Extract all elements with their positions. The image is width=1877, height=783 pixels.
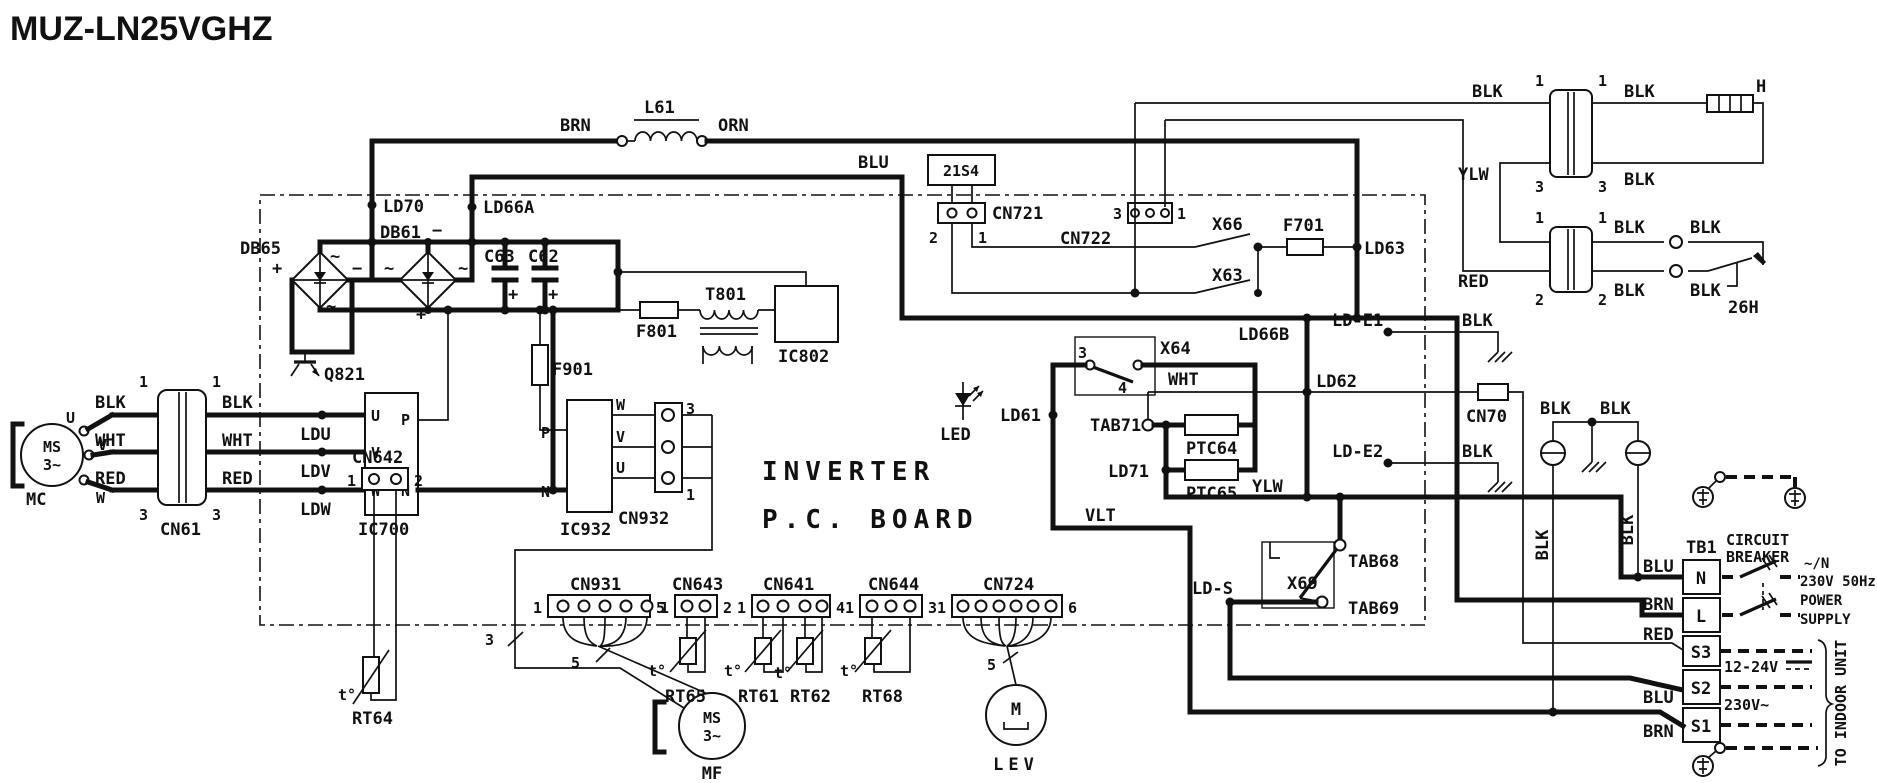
wire-blk-l: BLK [95, 393, 126, 413]
wire-wht-r: WHT [222, 431, 253, 451]
db61-minus: − [432, 221, 442, 241]
label-q821: Q821 [324, 365, 365, 385]
mf-ms: MS [703, 709, 721, 727]
label-lds: LD-S [1192, 579, 1233, 599]
label-db65: DB65 [240, 239, 281, 259]
ic932-p: P [541, 424, 550, 442]
db65-plus: + [272, 259, 282, 279]
tb-blu-n: BLU [1643, 557, 1674, 577]
db65-minus: − [352, 259, 362, 279]
ptc65-box [1185, 460, 1238, 480]
sensor-row: 1 2 CN642 t° RT64 1 5 CN931 5 MS 3~ MF 1… [338, 448, 1077, 783]
label-mains: 230V~ [1724, 696, 1769, 714]
c2-blk-4: BLK [1690, 281, 1721, 301]
label-c62: C62 [528, 247, 559, 267]
tb1-s3-label: S3 [1691, 643, 1711, 663]
cn641-p4: 4 [836, 599, 845, 617]
lde1-blk: BLK [1462, 311, 1493, 331]
label-ldw: LDW [300, 500, 331, 520]
label-tab68: TAB68 [1348, 552, 1399, 572]
label-rt62: RT62 [790, 687, 831, 707]
ic932-v: V [616, 428, 625, 446]
mc-3ph: 3~ [43, 456, 61, 474]
label-ptc65: PTC65 [1186, 484, 1237, 504]
label-ld61: LD61 [1000, 406, 1041, 426]
f901-fuse [532, 345, 548, 385]
cn932-p1: 1 [686, 486, 695, 504]
label-heater: H [1756, 77, 1766, 97]
earth-blk-v2: BLK [1618, 514, 1638, 545]
label-mf: MF [702, 764, 722, 783]
label-f801: F801 [636, 322, 677, 342]
earth-blk-2: BLK [1600, 399, 1631, 419]
ic700-p: P [401, 411, 410, 429]
label-phase: ~/N [1804, 556, 1829, 572]
label-wht2: WHT [1168, 370, 1199, 390]
tb-brn-s1: BRN [1643, 722, 1674, 742]
label-vlt: VLT [1085, 506, 1116, 526]
label-lde1: LD-E1 [1332, 311, 1383, 331]
ic802-box [775, 286, 838, 342]
label-cn643: CN643 [672, 575, 723, 595]
label-power: POWER [1800, 593, 1843, 609]
label-f701: F701 [1283, 216, 1324, 236]
lev-m: M [1011, 700, 1021, 720]
label-26h: 26H [1728, 298, 1759, 318]
label-mc: MC [26, 490, 46, 510]
label-rt65: RT65 [665, 687, 706, 707]
label-cn641: CN641 [763, 575, 814, 595]
db61-plus: + [416, 305, 426, 325]
label-ic932: IC932 [560, 520, 611, 540]
cn721-connector [938, 203, 985, 223]
label-cn644: CN644 [868, 575, 919, 595]
c1-blk-l: BLK [1472, 82, 1503, 102]
tb1-s1-label: S1 [1691, 717, 1711, 737]
mc-pin-u: U [66, 409, 75, 427]
c62-plus: + [548, 285, 558, 305]
connector-2 [1550, 227, 1592, 292]
label-ld71: LD71 [1108, 462, 1149, 482]
label-cn721: CN721 [992, 204, 1043, 224]
cn644-p1: 1 [845, 599, 854, 617]
wire-red-r: RED [222, 469, 253, 489]
cn61-pin3r: 3 [212, 506, 221, 524]
mf-3ph: 3~ [703, 727, 721, 745]
label-ylw2: YLW [1252, 477, 1283, 497]
label-cn61: CN61 [160, 520, 201, 540]
label-cn724: CN724 [983, 575, 1034, 595]
label-t801: T801 [705, 285, 746, 305]
cn644-p3: 3 [928, 599, 937, 617]
rt65-t: t° [648, 662, 666, 680]
earth-blk-v1: BLK [1533, 529, 1553, 560]
cn642-p2: 2 [414, 472, 423, 490]
label-rating: 230V 50Hz [1800, 574, 1876, 590]
cn724-p6: 6 [1068, 599, 1077, 617]
label-cn932: CN932 [618, 509, 669, 529]
label-ptc64: PTC64 [1186, 439, 1237, 459]
tb-red-s3: RED [1643, 625, 1674, 645]
label-ld66a: LD66A [483, 198, 534, 218]
wire-red-l: RED [95, 469, 126, 489]
c1-blk-b: BLK [1624, 170, 1655, 190]
cn643-p2: 2 [723, 599, 732, 617]
wiring-diagram: MUZ-LN25VGHZ INVERTER P.C. BOARD BRN L61… [0, 0, 1877, 783]
db61-ac2: ~ [458, 259, 468, 279]
cn724-p1: 1 [937, 599, 946, 617]
cn931-wires5: 5 [571, 654, 580, 672]
label-cn70: CN70 [1466, 407, 1507, 427]
x64-p4: 4 [1118, 379, 1127, 397]
label-ic700: IC700 [358, 520, 409, 540]
c63-plus: + [508, 285, 518, 305]
c1-p1l: 1 [1535, 72, 1544, 90]
label-supply: SUPPLY [1800, 612, 1851, 628]
c1-p3l: 3 [1535, 178, 1544, 196]
mc-pin-w: W [96, 489, 106, 507]
board-name-1: INVERTER [762, 457, 935, 487]
ic932-n: N [541, 483, 550, 501]
earth-blk-1: BLK [1540, 399, 1571, 419]
label-circuit: CIRCUIT [1726, 531, 1789, 549]
cn721-p2: 2 [929, 229, 938, 247]
f701-fuse [1287, 239, 1323, 255]
mf-wirecount-3: 3 [485, 631, 494, 649]
label-indoor: TO INDOOR UNIT [1832, 640, 1850, 766]
cn61-pin3l: 3 [139, 506, 148, 524]
x64-p3: 3 [1078, 344, 1087, 362]
label-ic802: IC802 [778, 347, 829, 367]
ic932-u: U [616, 459, 625, 477]
cn722-p1: 1 [1177, 205, 1186, 223]
label-ld70: LD70 [383, 197, 424, 217]
label-rt64: RT64 [352, 709, 393, 729]
db65-ac2: ~ [326, 297, 336, 317]
led-indicator: LED [940, 382, 983, 445]
label-cn642: CN642 [352, 448, 403, 468]
earth-block: CN70 LD-E1 BLK LD-E2 BLK BLK BLK BLK BLK [1332, 311, 1683, 717]
inverter-drive-block: F901 P N IC932 W V U 3 1 CN932 3 [485, 306, 712, 709]
page-title: MUZ-LN25VGHZ [10, 10, 273, 48]
c2-p2l: 2 [1535, 291, 1544, 309]
label-breaker: BREAKER [1726, 548, 1790, 566]
db65-ac1: ~ [330, 247, 340, 267]
label-rt68: RT68 [862, 687, 903, 707]
mf-bracket [655, 702, 664, 752]
ic700-u: U [371, 407, 380, 425]
label-ld63: LD63 [1364, 239, 1405, 259]
cn641-p1: 1 [737, 599, 746, 617]
cn724-wires5: 5 [987, 656, 996, 674]
label-ylw: YLW [1458, 165, 1489, 185]
line-blu: BLU [472, 153, 1357, 318]
cn642-p1: 1 [347, 472, 356, 490]
c2-blk-2: BLK [1690, 218, 1721, 238]
ic932-box [567, 400, 612, 512]
label-x69: X69 [1287, 574, 1318, 594]
wire-blk-r: BLK [222, 393, 253, 413]
rt62-t: t° [774, 664, 792, 682]
c2-p2r: 2 [1598, 291, 1607, 309]
lde2-blk: BLK [1462, 442, 1493, 462]
label-c63: C63 [484, 247, 515, 267]
label-led: LED [940, 425, 971, 445]
label-x66: X66 [1212, 215, 1243, 235]
label-tab69: TAB69 [1348, 599, 1399, 619]
rt64-thermistor [363, 657, 379, 693]
q821-transistor: Q821 [291, 352, 365, 385]
tb1-s2-label: S2 [1691, 679, 1711, 699]
label-blu: BLU [858, 153, 889, 173]
label-x64: X64 [1160, 339, 1191, 359]
label-lde2: LD-E2 [1332, 442, 1383, 462]
tb1-l-label: L [1696, 607, 1706, 627]
db61-ac1: ~ [384, 259, 394, 279]
label-ld62: LD62 [1316, 372, 1357, 392]
indoor-brace [1818, 640, 1832, 766]
schematic-page: MUZ-LN25VGHZ INVERTER P.C. BOARD BRN L61… [0, 0, 1877, 783]
ptc64-box [1185, 415, 1238, 435]
label-l61: L61 [644, 98, 675, 118]
label-x63: X63 [1212, 266, 1243, 286]
cn61-connector [158, 390, 206, 505]
ptc-relay-block: LD66B LD62 3 4 X64 LD61 VLT WHT TAB71 PT… [1000, 314, 1683, 713]
label-tb1: TB1 [1686, 538, 1717, 558]
f801-fuse [640, 302, 678, 318]
tb-brn-l: BRN [1643, 595, 1674, 615]
c2-blk-1: BLK [1614, 218, 1645, 238]
cn722-p3: 3 [1113, 205, 1122, 223]
c1-p1r: 1 [1598, 72, 1607, 90]
cn70-connector [1478, 384, 1508, 400]
mc-ms: MS [43, 438, 61, 456]
label-sig: 12-24V [1724, 658, 1778, 676]
board-name-2: P.C. BOARD [762, 505, 979, 535]
c2-p1l: 1 [1535, 209, 1544, 227]
label-cn722: CN722 [1060, 229, 1111, 249]
ic932-w: W [616, 396, 626, 414]
tb1-n-label: N [1696, 569, 1706, 589]
wire-wht-l: WHT [95, 431, 126, 451]
rt64-t: t° [338, 686, 356, 704]
label-f901: F901 [552, 360, 593, 380]
c1-p3r: 3 [1598, 178, 1607, 196]
label-21s4: 21S4 [943, 162, 979, 180]
label-cn931: CN931 [570, 575, 621, 595]
c1-blk-r: BLK [1624, 82, 1655, 102]
label-orn: ORN [718, 116, 749, 136]
label-ldv: LDV [300, 462, 331, 482]
connector-1 [1550, 90, 1592, 177]
label-brn: BRN [560, 116, 591, 136]
c2-blk-3: BLK [1614, 281, 1645, 301]
label-rt61: RT61 [738, 687, 779, 707]
label-lev: LEV [993, 755, 1039, 775]
power-supply-block: F801 T801 IC802 [614, 268, 839, 368]
cn61-pin1l: 1 [139, 373, 148, 391]
cn931-p1: 1 [533, 599, 542, 617]
tb-blu-s2: BLU [1643, 688, 1674, 708]
rt68-t: t° [840, 662, 858, 680]
cn643-p1: 1 [660, 599, 669, 617]
cn721-p1: 1 [978, 229, 987, 247]
cn61-pin1r: 1 [212, 373, 221, 391]
label-db61: DB61 [380, 223, 421, 243]
label-red-c2: RED [1458, 272, 1489, 292]
valve-control-block: 21S4 2 1 CN721 3 1 CN722 F701 X66 X63 LD… [928, 103, 1405, 323]
c2-p1r: 1 [1598, 209, 1607, 227]
label-tab71: TAB71 [1090, 416, 1141, 436]
label-ldu: LDU [300, 425, 331, 445]
label-ld66b: LD66B [1238, 325, 1289, 345]
rt61-t: t° [724, 662, 742, 680]
